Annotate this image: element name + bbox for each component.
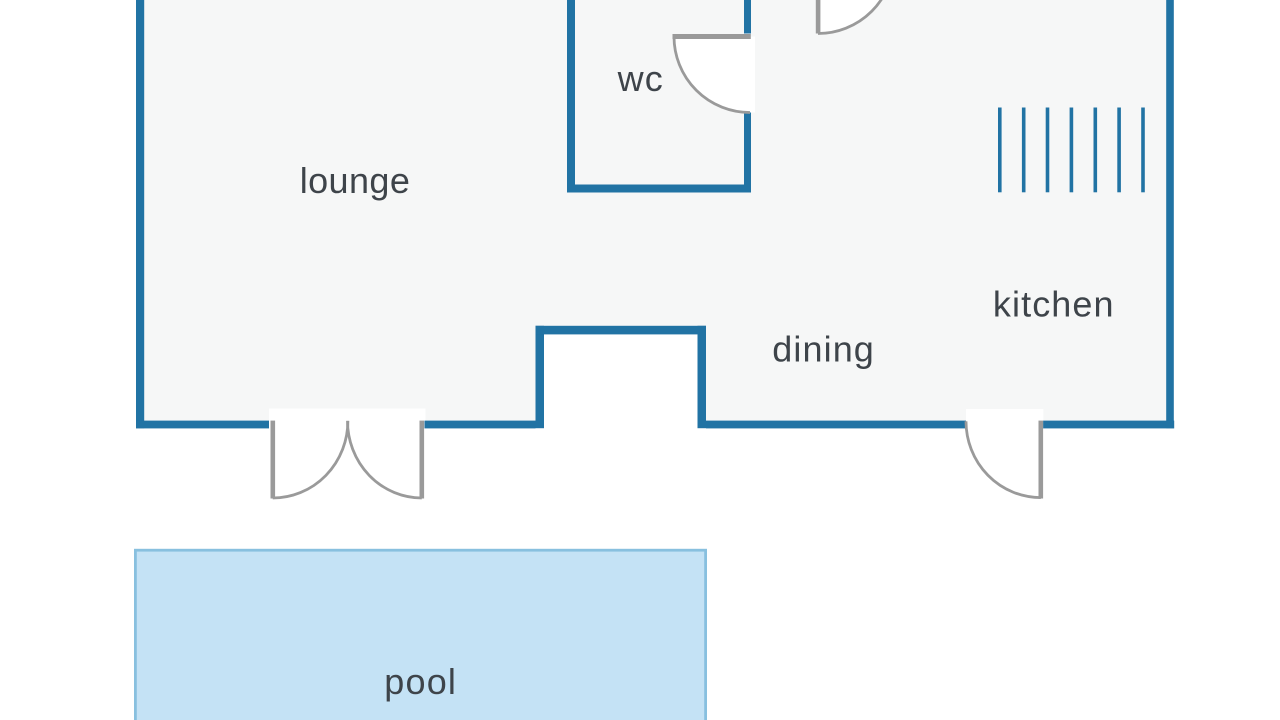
svg-text:wc: wc: [617, 58, 664, 99]
svg-text:dining: dining: [772, 329, 875, 370]
svg-text:lounge: lounge: [300, 160, 411, 201]
svg-text:pool: pool: [384, 661, 457, 702]
svg-text:kitchen: kitchen: [993, 284, 1115, 325]
